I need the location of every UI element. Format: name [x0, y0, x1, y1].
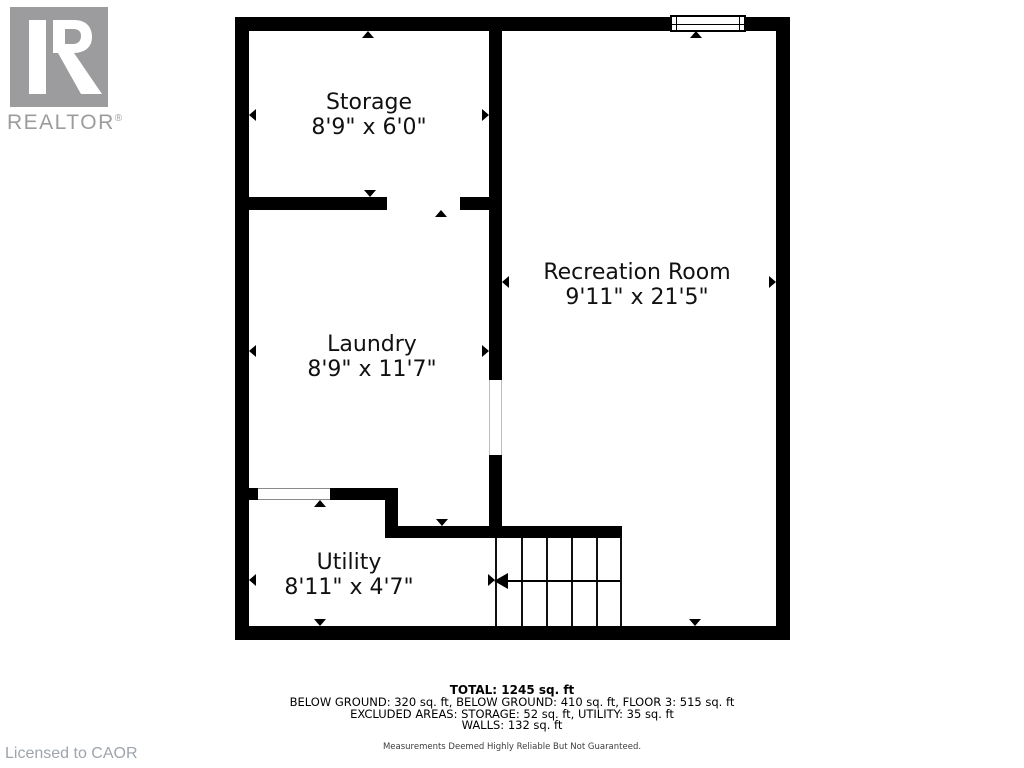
room-label-laundry: Laundry 8'9" x 11'7": [307, 332, 436, 382]
doorway-opening-middle-wall: [489, 380, 502, 455]
wall-storage-laundry-stub: [460, 197, 489, 210]
room-label-storage: Storage 8'9" x 6'0": [311, 90, 426, 140]
walls-area-text: WALLS: 132 sq. ft: [0, 720, 1024, 732]
room-dims: 8'9" x 11'7": [307, 357, 436, 382]
dimension-arrow-icon: [362, 31, 374, 38]
wall-storage-laundry: [249, 197, 387, 210]
room-label-recreation: Recreation Room 9'11" x 21'5": [543, 260, 730, 310]
dimension-arrow-icon: [249, 574, 256, 586]
dimension-arrow-icon: [769, 276, 776, 288]
dimension-arrow-icon: [436, 519, 448, 526]
wall-left: [235, 17, 249, 640]
stair-tread-line: [571, 538, 573, 626]
area-summary: TOTAL: 1245 sq. ft BELOW GROUND: 320 sq.…: [0, 684, 1024, 752]
doorway-opening-utility: [258, 488, 330, 500]
wall-middle-upper: [489, 31, 502, 380]
stair-tread-line: [596, 538, 598, 626]
disclaimer-text: Measurements Deemed Highly Reliable But …: [0, 742, 1024, 752]
window-icon: [670, 15, 746, 32]
window-cap-right: [739, 17, 740, 30]
stair-direction-line: [506, 580, 620, 582]
wall-stairs-top: [385, 526, 622, 538]
room-dims: 8'9" x 6'0": [311, 115, 426, 140]
dimension-arrow-icon: [249, 345, 256, 357]
wall-right: [776, 17, 790, 640]
dimension-arrow-icon: [314, 500, 326, 507]
window-cap-left: [676, 17, 677, 30]
stair-direction-arrow-icon: [494, 573, 508, 589]
room-dims: 8'11" x 4'7": [284, 575, 413, 600]
dimension-arrow-icon: [502, 276, 509, 288]
stair-tread-line: [546, 538, 548, 626]
room-name: Utility: [284, 550, 413, 575]
floor-plan-diagram: Storage 8'9" x 6'0" Recreation Room 9'11…: [0, 0, 1024, 768]
stair-tread-line: [521, 538, 523, 626]
dimension-arrow-icon: [689, 619, 701, 626]
wall-utility-left-stub: [249, 488, 258, 500]
room-name: Storage: [311, 90, 426, 115]
dimension-arrow-icon: [482, 109, 489, 121]
dimension-arrow-icon: [690, 31, 702, 38]
dimension-arrow-icon: [249, 109, 256, 121]
wall-bottom: [235, 626, 790, 640]
dimension-arrow-icon: [314, 619, 326, 626]
wall-top-left: [235, 17, 672, 31]
room-name: Laundry: [307, 332, 436, 357]
stair-tread-line: [620, 538, 622, 626]
dimension-arrow-icon: [482, 345, 489, 357]
dimension-arrow-icon: [364, 190, 376, 197]
dimension-arrow-icon: [435, 210, 447, 217]
room-name: Recreation Room: [543, 260, 730, 285]
room-dims: 9'11" x 21'5": [543, 285, 730, 310]
dimension-arrow-icon: [488, 574, 495, 586]
window-mid-line: [672, 24, 744, 25]
room-label-utility: Utility 8'11" x 4'7": [284, 550, 413, 600]
